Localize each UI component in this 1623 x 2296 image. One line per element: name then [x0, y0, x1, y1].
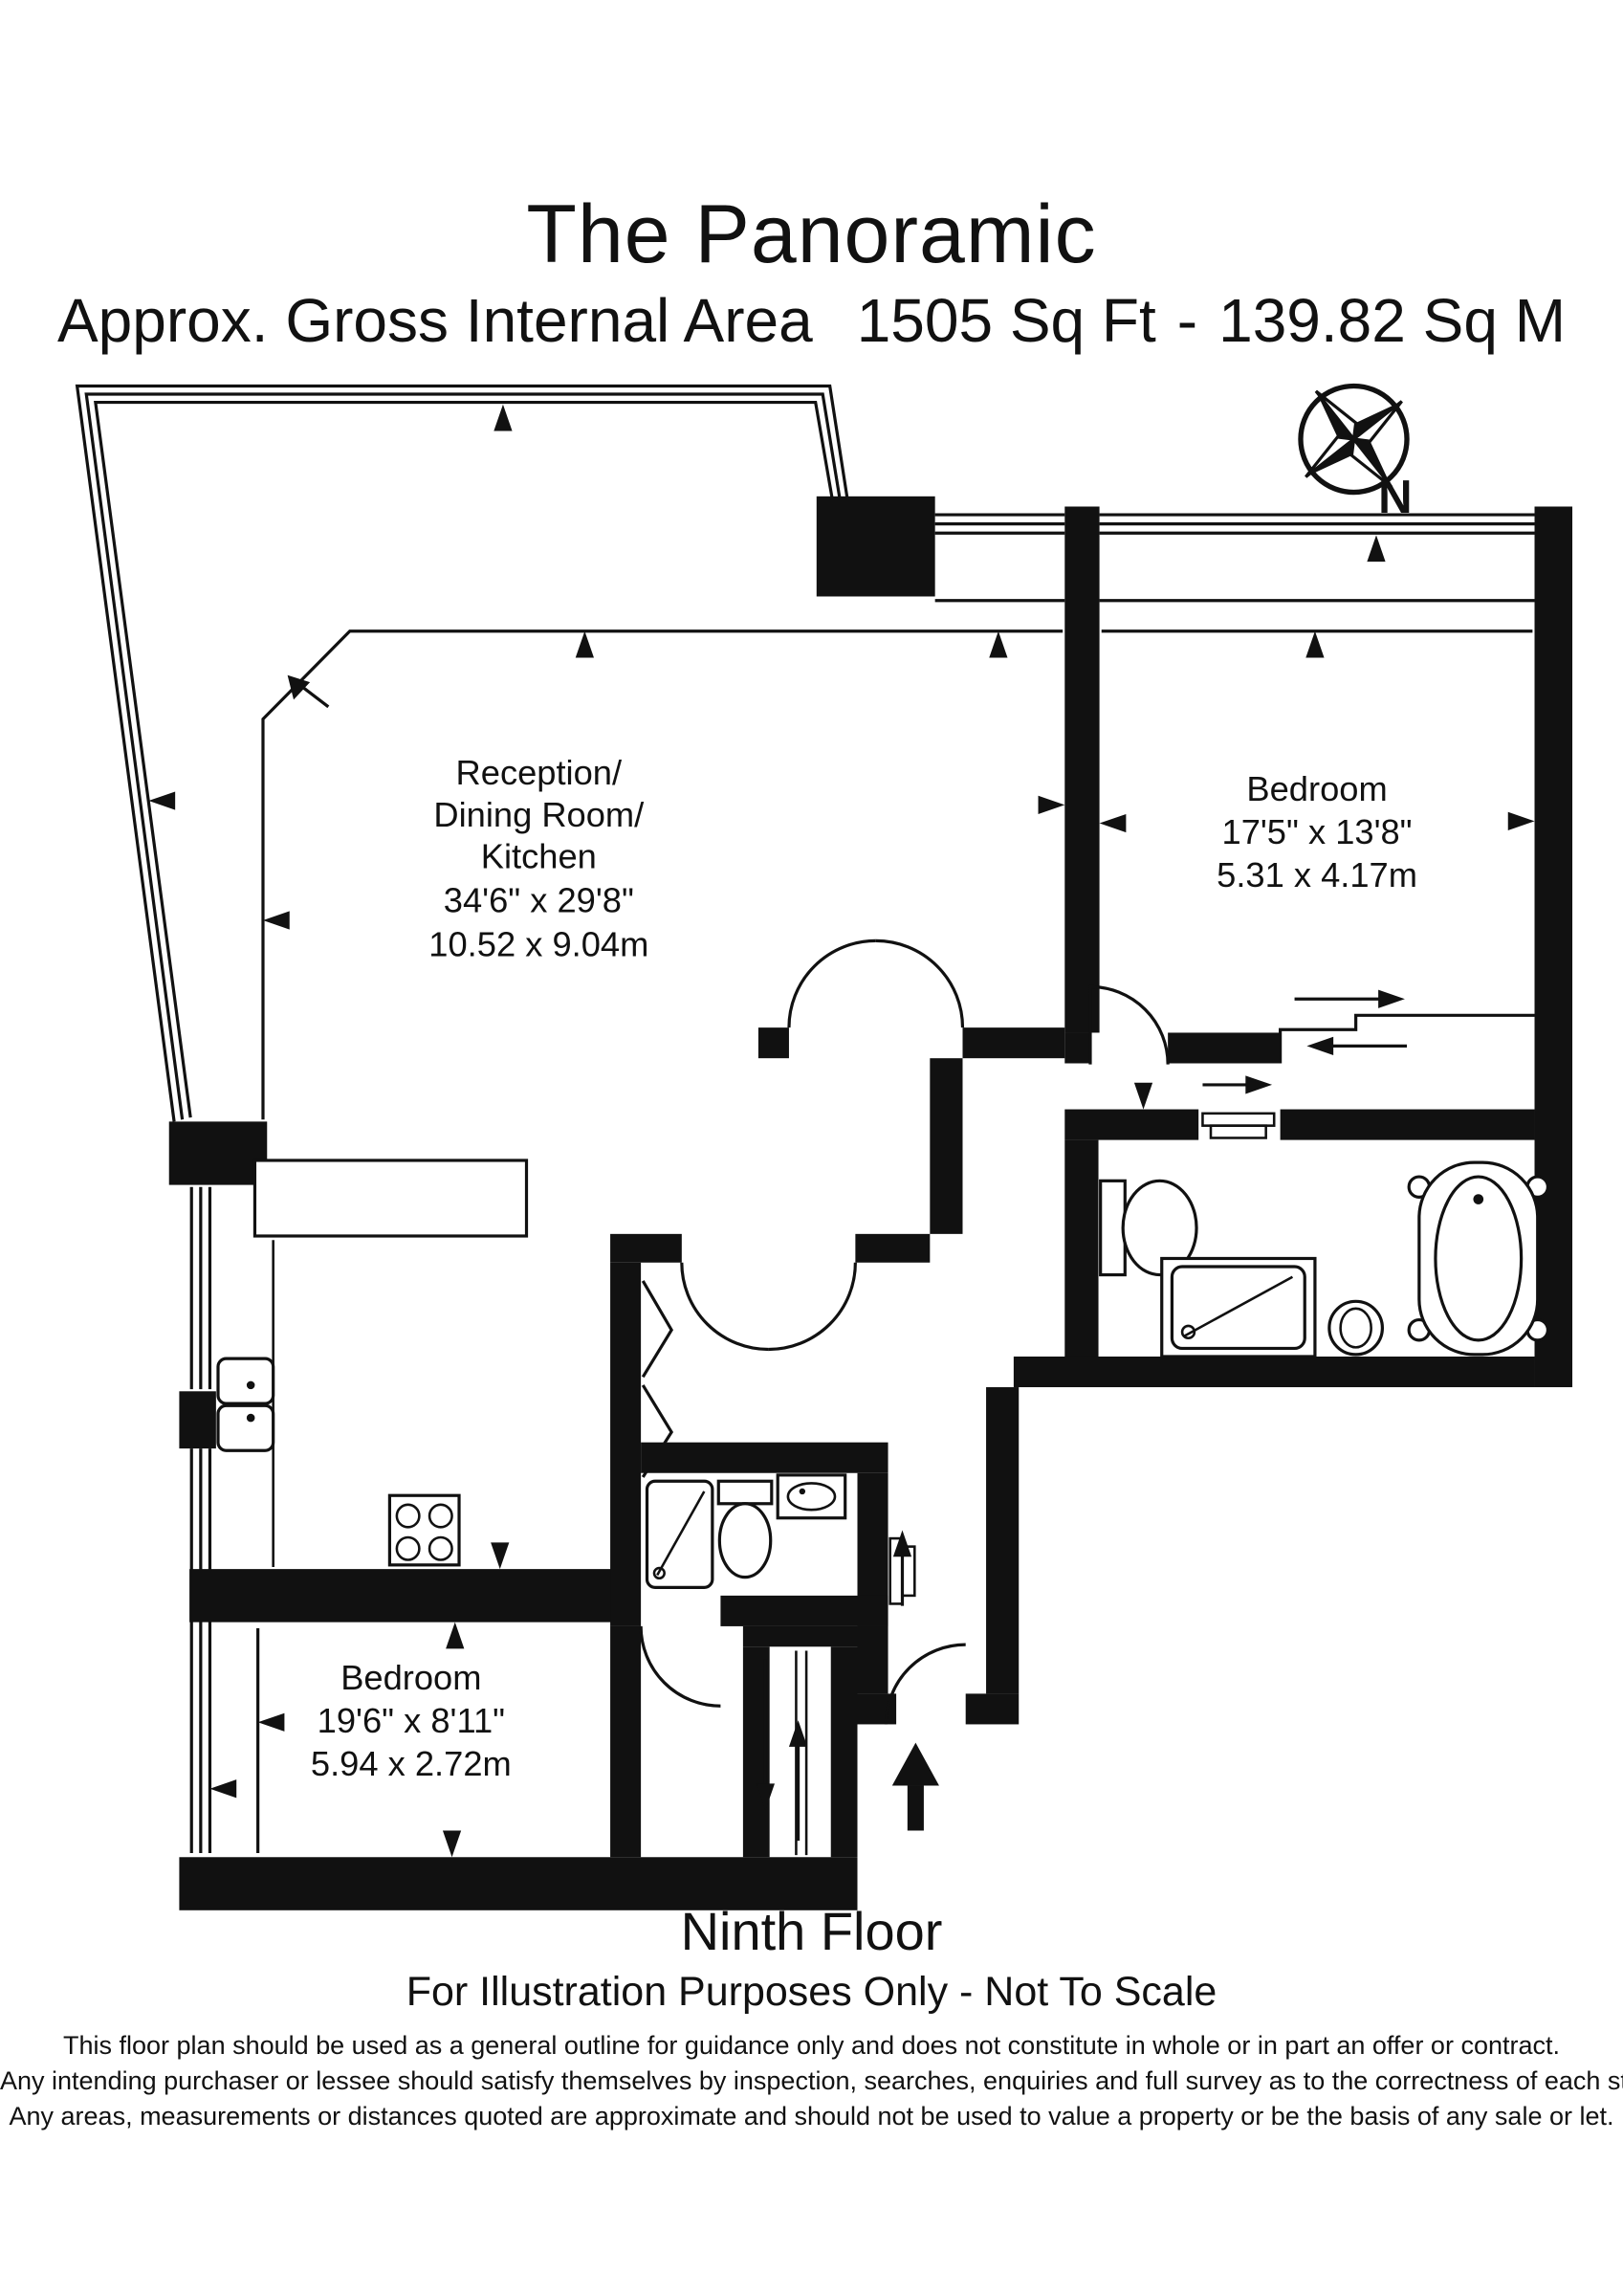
entrance-arrow-icon — [892, 1743, 939, 1831]
reception-label: Reception/ Dining Room/ Kitchen 34'6" x … — [428, 753, 648, 963]
svg-text:Dining Room/: Dining Room/ — [433, 795, 645, 834]
compass-rose-icon: N — [1301, 386, 1413, 522]
svg-text:Bedroom: Bedroom — [340, 1658, 481, 1697]
svg-text:10.52 x 9.04m: 10.52 x 9.04m — [428, 924, 648, 963]
svg-text:17'5" x 13'8": 17'5" x 13'8" — [1222, 812, 1413, 851]
svg-text:19'6" x 8'11": 19'6" x 8'11" — [318, 1701, 505, 1740]
wardrobe-step — [1281, 1015, 1535, 1063]
svg-text:Kitchen: Kitchen — [481, 837, 597, 876]
svg-text:Reception/: Reception/ — [456, 753, 623, 792]
disclaimer: This floor plan should be used as a gene… — [0, 2028, 1623, 2134]
svg-text:5.31 x 4.17m: 5.31 x 4.17m — [1217, 855, 1417, 894]
floorplan-page: The Panoramic Approx. Gross Internal Are… — [0, 0, 1623, 2296]
bedroom-bottom-label: Bedroom 19'6" x 8'11" 5.94 x 2.72m — [311, 1658, 512, 1783]
entrance-door — [886, 1645, 965, 1724]
hob-icon — [389, 1495, 459, 1565]
floor-name: Ninth Floor — [0, 1900, 1623, 1962]
area-metric: 139.82 Sq M — [1218, 286, 1566, 355]
page-title: The Panoramic — [0, 188, 1623, 282]
svg-text:34'6" x 29'8": 34'6" x 29'8" — [444, 880, 634, 919]
bedroom-right-door — [1090, 986, 1168, 1064]
reception-double-door-left — [789, 940, 876, 1027]
svg-text:5.94 x 2.72m: 5.94 x 2.72m — [311, 1744, 512, 1783]
bedroom-right-label: Bedroom 17'5" x 13'8" 5.31 x 4.17m — [1217, 769, 1417, 894]
shower-icon — [1162, 1258, 1315, 1357]
floor-plan: N Reception/ Dining Room/ Kitchen 34'6" … — [38, 364, 1616, 1913]
area-imperial: 1505 Sq Ft — [857, 286, 1156, 355]
basin-icon — [1329, 1301, 1383, 1355]
disclaimer-line-1: This floor plan should be used as a gene… — [0, 2028, 1623, 2064]
disclaimer-line-3: Any areas, measurements or distances quo… — [0, 2099, 1623, 2134]
shower-room-toilet-icon — [718, 1481, 772, 1577]
kitchen-sink-icon — [218, 1358, 274, 1450]
gross-internal-area-line: Approx. Gross Internal Area1505 Sq Ft-13… — [0, 285, 1623, 356]
north-label: N — [1378, 472, 1412, 523]
lobby-double-door-right — [769, 1263, 856, 1350]
scale-note: For Illustration Purposes Only - Not To … — [0, 1969, 1623, 2016]
bifold-door-upper — [643, 1281, 671, 1377]
lobby-double-door-left — [682, 1263, 769, 1350]
svg-text:Bedroom: Bedroom — [1246, 769, 1387, 808]
shower-room-shower-icon — [647, 1481, 713, 1587]
disclaimer-line-2: Any intending purchaser or lessee should… — [0, 2064, 1623, 2099]
bath-icon — [1409, 1162, 1547, 1355]
reception-double-door-right — [876, 940, 963, 1027]
bedroom-bottom-door — [641, 1626, 720, 1706]
shower-room-basin-icon — [778, 1475, 844, 1518]
area-label: Approx. Gross Internal Area — [57, 286, 813, 355]
area-separator: - — [1177, 286, 1197, 355]
